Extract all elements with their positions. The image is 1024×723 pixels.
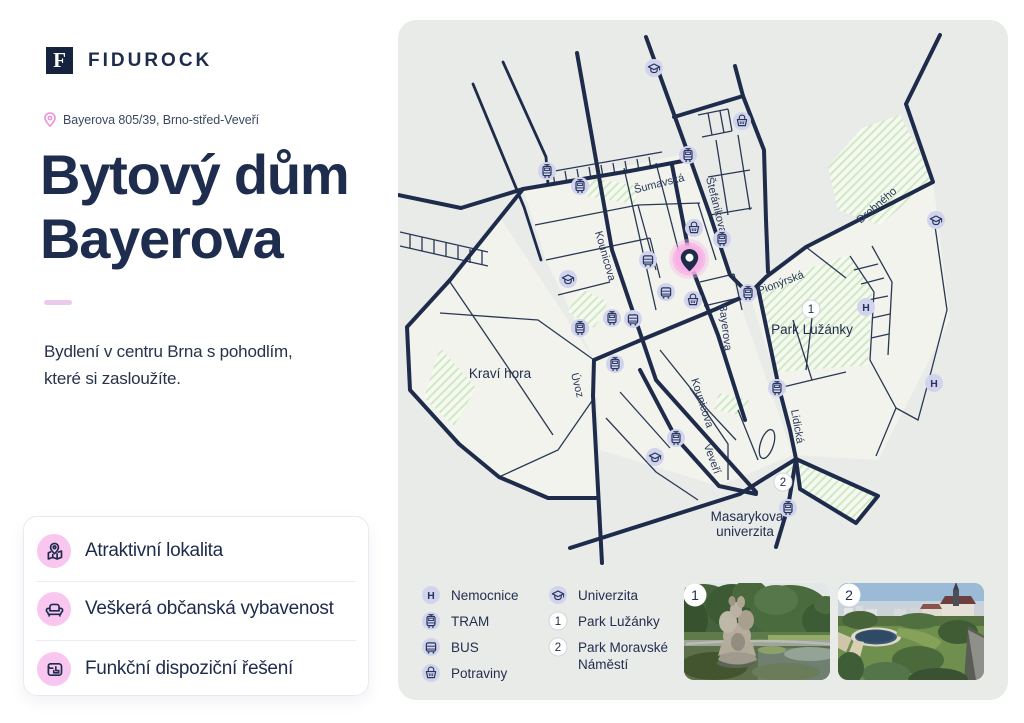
svg-text:Potraviny: Potraviny xyxy=(451,666,508,681)
svg-text:TRAM: TRAM xyxy=(451,614,489,629)
svg-text:univerzita: univerzita xyxy=(716,524,774,539)
svg-text:Univerzita: Univerzita xyxy=(578,588,639,603)
svg-text:Park Lužánky: Park Lužánky xyxy=(578,614,660,629)
svg-text:Nemocnice: Nemocnice xyxy=(451,588,519,603)
svg-text:Kraví hora: Kraví hora xyxy=(469,366,532,381)
svg-text:Masarykova: Masarykova xyxy=(711,509,784,524)
svg-text:BUS: BUS xyxy=(451,640,479,655)
svg-text:Náměstí: Náměstí xyxy=(578,657,629,672)
svg-text:Park Lužánky: Park Lužánky xyxy=(771,322,853,337)
svg-text:Park Moravské: Park Moravské xyxy=(578,640,668,655)
